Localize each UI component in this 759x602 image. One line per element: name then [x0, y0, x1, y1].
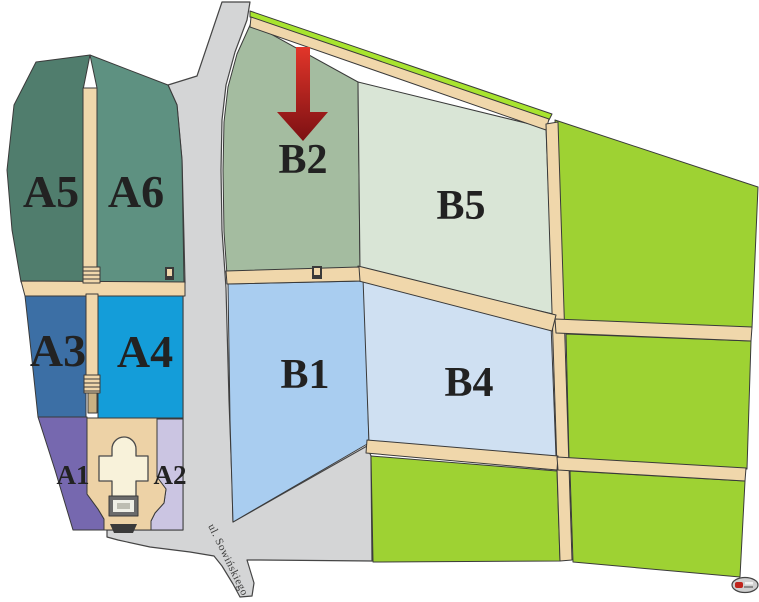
- plaza-gate: [110, 524, 137, 533]
- green-parcel-southeast: [570, 471, 745, 577]
- gate-b2-small: [312, 266, 322, 279]
- label-a4: A4: [117, 326, 173, 377]
- green-parcel-east: [566, 334, 751, 469]
- label-b4: B4: [444, 360, 493, 406]
- gate-a6-small: [165, 267, 174, 280]
- label-a6: A6: [108, 166, 164, 217]
- label-a1: A1: [57, 460, 90, 490]
- label-a3: A3: [30, 325, 86, 376]
- label-b5: B5: [436, 183, 485, 229]
- walkway-a3-a4: [86, 294, 98, 378]
- publisher-logo-icon: [732, 578, 758, 593]
- label-b2: B2: [278, 137, 327, 183]
- walkway-a5-a6: [83, 88, 97, 284]
- site-map: A5 A6 A3 A4 A1 A2 B2 B5 B1 B4 ul. Sowińs…: [0, 0, 759, 602]
- walkway-a-horizontal: [21, 281, 185, 296]
- chapel-steps: [109, 496, 138, 516]
- label-a2: A2: [154, 460, 187, 490]
- label-b1: B1: [280, 352, 329, 398]
- green-parcel-south: [371, 456, 560, 562]
- gate-a5-a6: [83, 267, 100, 283]
- label-a5: A5: [23, 166, 79, 217]
